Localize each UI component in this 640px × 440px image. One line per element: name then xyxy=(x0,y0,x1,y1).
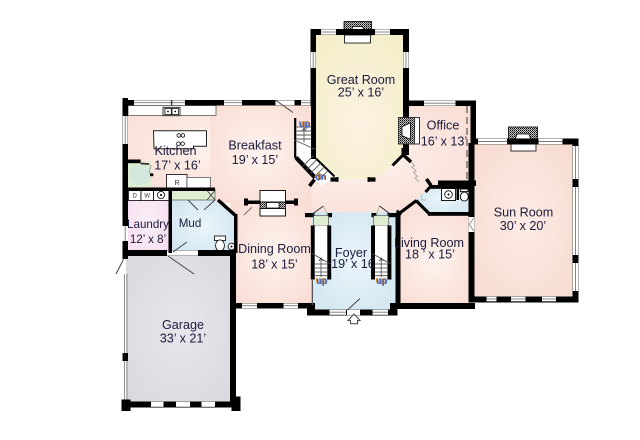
svg-text:19’ x 15’: 19’ x 15’ xyxy=(232,153,279,167)
svg-text:W: W xyxy=(144,194,150,200)
svg-text:30’ x 20’: 30’ x 20’ xyxy=(500,219,547,233)
svg-text:12’ x 8’: 12’ x 8’ xyxy=(130,233,166,246)
svg-text:up: up xyxy=(300,119,311,129)
svg-text:Office: Office xyxy=(427,119,460,133)
svg-text:18’ x 15’: 18’ x 15’ xyxy=(251,258,298,272)
svg-text:25’ x 16’: 25’ x 16’ xyxy=(338,86,385,100)
svg-text:dn: dn xyxy=(316,172,327,182)
svg-text:Kitchen: Kitchen xyxy=(154,144,196,158)
svg-text:19’ x 16: 19’ x 16 xyxy=(331,257,375,271)
svg-text:16’ x 13’: 16’ x 13’ xyxy=(421,135,468,149)
svg-text:17’ x 16’: 17’ x 16’ xyxy=(154,159,201,173)
svg-text:Mud: Mud xyxy=(179,217,202,230)
svg-text:Dining Room: Dining Room xyxy=(238,242,311,256)
svg-text:Laundry: Laundry xyxy=(127,218,169,231)
svg-text:up: up xyxy=(377,276,388,286)
svg-text:Breakfast: Breakfast xyxy=(228,139,282,153)
svg-text:Sun Room: Sun Room xyxy=(494,206,554,220)
svg-text:33’ x 21’: 33’ x 21’ xyxy=(160,332,207,346)
svg-text:up: up xyxy=(317,276,328,286)
svg-text:18 ’ x 15’: 18 ’ x 15’ xyxy=(405,248,455,262)
svg-text:Garage: Garage xyxy=(162,318,204,332)
svg-text:D: D xyxy=(133,194,138,200)
svg-text:R: R xyxy=(174,180,179,187)
